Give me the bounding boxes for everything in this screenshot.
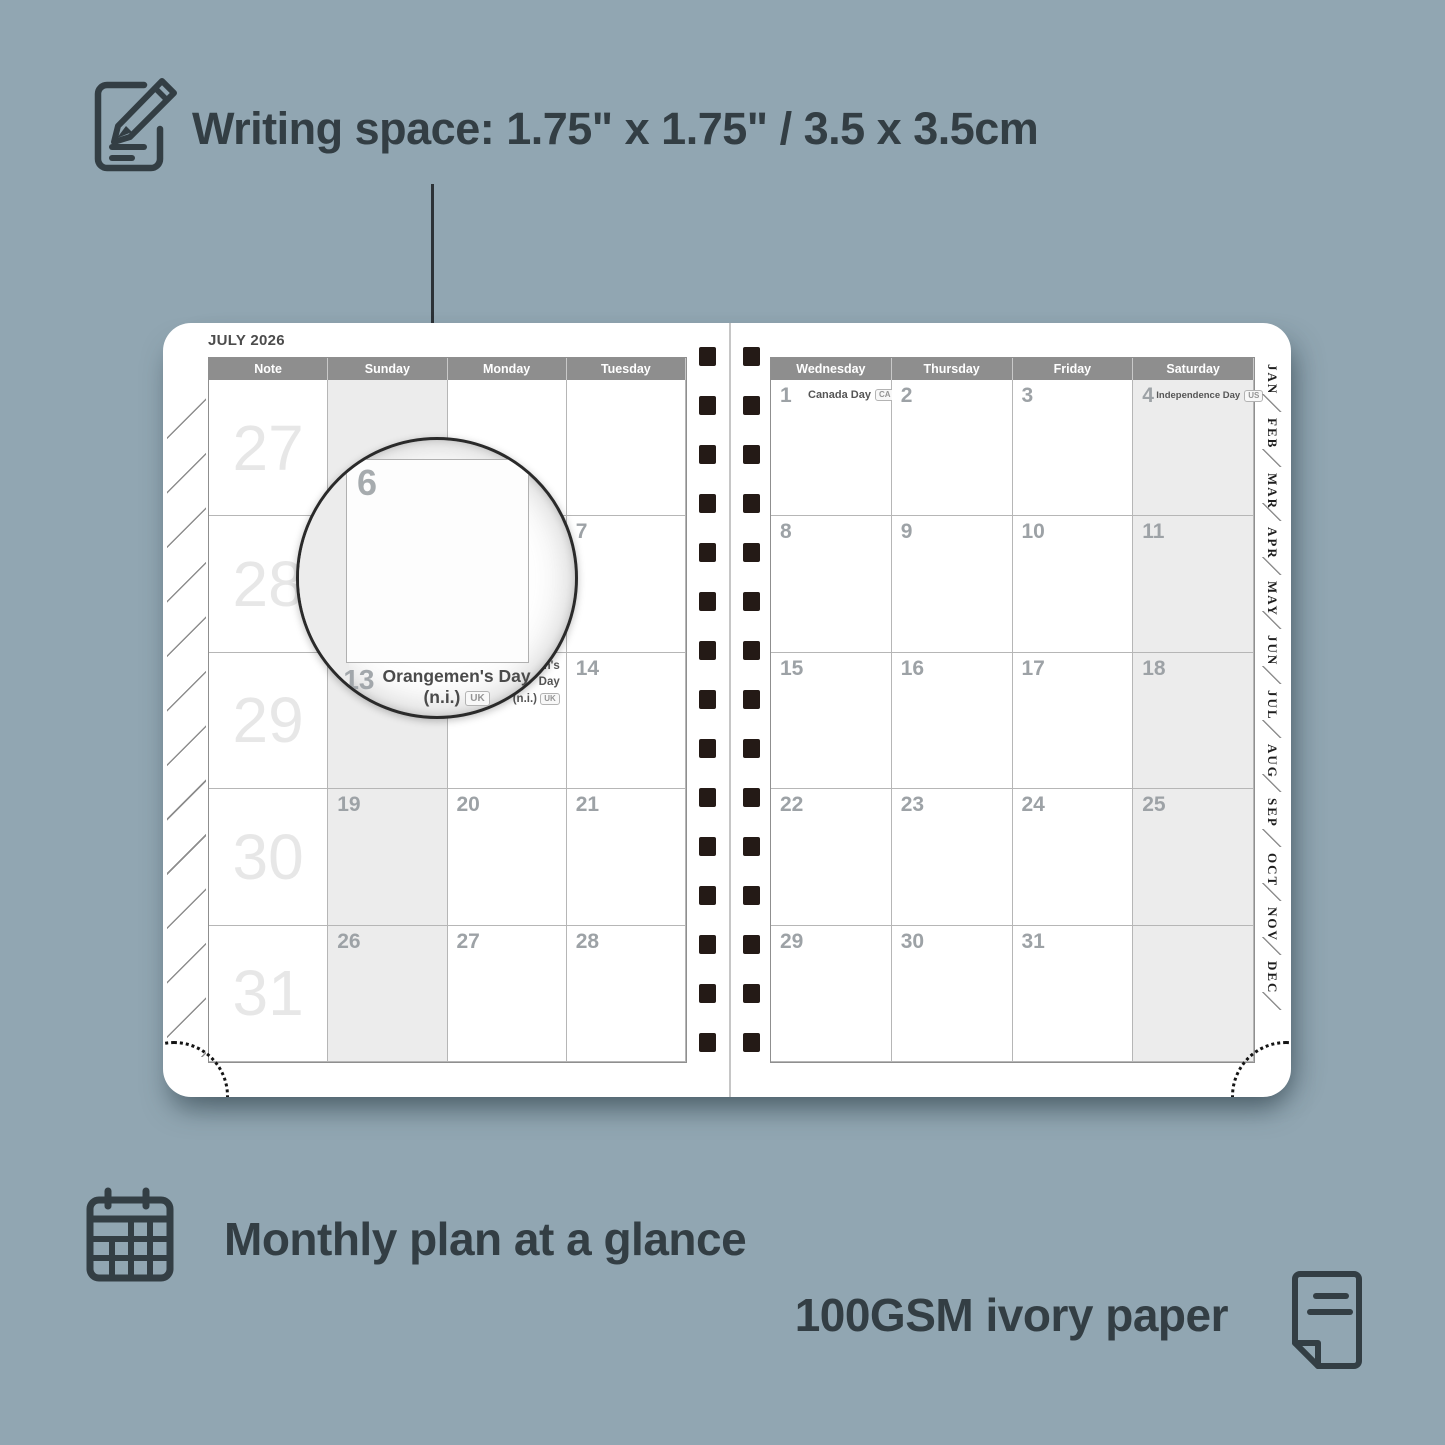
binding-hole bbox=[699, 1033, 716, 1052]
left-page-edge-hatch bbox=[167, 385, 206, 1057]
day-number: 28 bbox=[576, 930, 599, 954]
day-number: 8 bbox=[780, 520, 792, 544]
day-number: 21 bbox=[576, 793, 599, 817]
month-tab-label: JAN bbox=[1264, 364, 1280, 395]
calendar-cell: 21 bbox=[567, 789, 686, 925]
binding-hole bbox=[699, 494, 716, 513]
binding-hole bbox=[743, 935, 760, 954]
binding-hole bbox=[743, 788, 760, 807]
day-number: 18 bbox=[1142, 657, 1165, 681]
month-tab-dec: DEC bbox=[1253, 955, 1291, 1009]
right-page-calendar-grid: WednesdayThursdayFridaySaturday1Canada D… bbox=[770, 357, 1255, 1063]
binding-hole bbox=[743, 347, 760, 366]
calendar-cell: 2 bbox=[892, 380, 1013, 516]
binding-hole bbox=[743, 690, 760, 709]
binding-hole bbox=[699, 592, 716, 611]
magnified-caption-day: 13 bbox=[343, 666, 374, 694]
month-tab-mar: MAR bbox=[1253, 467, 1291, 521]
holiday-subtitle: (n.i.) bbox=[423, 687, 460, 707]
holiday-label: Independence DayUS bbox=[1156, 390, 1250, 402]
month-tab-label: MAY bbox=[1264, 581, 1280, 617]
day-header: Thursday bbox=[892, 358, 1013, 380]
calendar-cell: 15 bbox=[771, 653, 892, 789]
calendar-cell: 8 bbox=[771, 516, 892, 652]
binding-hole bbox=[743, 641, 760, 660]
day-number: 31 bbox=[1022, 930, 1045, 954]
month-tab-strip: JANFEBMARAPRMAYJUNJULAUGSEPOCTNOVDEC bbox=[1253, 358, 1291, 1010]
week-number-cell: 30 bbox=[209, 789, 328, 925]
day-number: 27 bbox=[457, 930, 480, 954]
page-seam bbox=[729, 323, 731, 1097]
magnifier-circle: 6 13 Orangemen's Day (n.i.) UK bbox=[296, 437, 578, 719]
month-tab-label: AUG bbox=[1264, 744, 1280, 779]
calendar-cell: 26 bbox=[328, 926, 447, 1062]
calendar-cell: 19 bbox=[328, 789, 447, 925]
month-tab-label: SEP bbox=[1264, 798, 1280, 828]
binding-hole bbox=[699, 347, 716, 366]
calendar-cell: 7 bbox=[567, 516, 686, 652]
day-number: 17 bbox=[1022, 657, 1045, 681]
calendar-cell: 20 bbox=[448, 789, 567, 925]
calendar-cell: 22 bbox=[771, 789, 892, 925]
day-number: 23 bbox=[901, 793, 924, 817]
calendar-cell: 24 bbox=[1013, 789, 1134, 925]
month-tab-label: MAR bbox=[1264, 473, 1280, 510]
binding-hole bbox=[743, 984, 760, 1003]
day-number: 7 bbox=[576, 520, 588, 544]
calendar-cell: 10 bbox=[1013, 516, 1134, 652]
month-tab-sep: SEP bbox=[1253, 792, 1291, 846]
day-number: 3 bbox=[1022, 384, 1034, 408]
month-title: JULY 2026 bbox=[208, 332, 285, 349]
month-tab-oct: OCT bbox=[1253, 847, 1291, 901]
week-number: 31 bbox=[209, 926, 327, 1061]
binding-hole bbox=[743, 837, 760, 856]
calendar-cell: 25 bbox=[1133, 789, 1254, 925]
binding-hole bbox=[699, 935, 716, 954]
writing-space-caption: Writing space: 1.75" x 1.75" / 3.5 x 3.5… bbox=[192, 103, 1038, 155]
day-number: 1 bbox=[780, 384, 792, 408]
binding-hole bbox=[743, 1033, 760, 1052]
binding-hole bbox=[699, 984, 716, 1003]
day-number: 15 bbox=[780, 657, 803, 681]
country-badge: UK bbox=[465, 691, 489, 706]
holiday-label: Canada DayCA bbox=[808, 389, 888, 401]
binding-hole bbox=[699, 886, 716, 905]
holiday-name: Independence Day bbox=[1156, 390, 1240, 401]
day-header: Wednesday bbox=[771, 358, 892, 380]
day-number: 4 bbox=[1142, 384, 1154, 408]
calendar-cell: 9 bbox=[892, 516, 1013, 652]
calendar-cell: 18 bbox=[1133, 653, 1254, 789]
calendar-cell: 11 bbox=[1133, 516, 1254, 652]
day-header: Tuesday bbox=[567, 358, 686, 380]
binding-hole bbox=[743, 592, 760, 611]
binding-hole bbox=[699, 837, 716, 856]
magnified-holiday-caption: 13 Orangemen's Day (n.i.) UK bbox=[329, 666, 545, 708]
magnified-day-number: 6 bbox=[357, 462, 377, 504]
pencil-note-icon bbox=[84, 74, 184, 176]
binding-hole bbox=[699, 543, 716, 562]
calendar-cell: 31 bbox=[1013, 926, 1134, 1062]
binding-hole bbox=[743, 543, 760, 562]
day-number: 19 bbox=[337, 793, 360, 817]
week-number-cell: 31 bbox=[209, 926, 328, 1062]
feature-monthly-plan: Monthly plan at a glance bbox=[224, 1212, 746, 1266]
week-number: 30 bbox=[209, 789, 327, 924]
month-tab-label: DEC bbox=[1264, 961, 1280, 994]
binding-hole bbox=[699, 445, 716, 464]
calendar-cell: 28 bbox=[567, 926, 686, 1062]
month-tab-jul: JUL bbox=[1253, 684, 1291, 738]
binding-hole bbox=[743, 886, 760, 905]
calendar-cell: 4Independence DayUS bbox=[1133, 380, 1254, 516]
calendar-cell: 17 bbox=[1013, 653, 1134, 789]
day-header: Note bbox=[209, 358, 328, 380]
day-number: 25 bbox=[1142, 793, 1165, 817]
binding-hole bbox=[699, 739, 716, 758]
calendar-cell: 23 bbox=[892, 789, 1013, 925]
month-tab-may: MAY bbox=[1253, 575, 1291, 629]
month-tab-feb: FEB bbox=[1253, 412, 1291, 466]
day-header: Friday bbox=[1013, 358, 1134, 380]
day-number: 2 bbox=[901, 384, 913, 408]
day-header: Saturday bbox=[1133, 358, 1254, 380]
magnified-writing-cell: 6 bbox=[346, 459, 529, 663]
calendar-cell bbox=[567, 380, 686, 516]
month-tab-label: NOV bbox=[1264, 907, 1280, 942]
day-number: 22 bbox=[780, 793, 803, 817]
day-header: Sunday bbox=[328, 358, 447, 380]
month-tab-apr: APR bbox=[1253, 521, 1291, 575]
binding-hole bbox=[699, 690, 716, 709]
calendar-grid-icon bbox=[82, 1186, 178, 1286]
magnified-caption-text: Orangemen's Day (n.i.) UK bbox=[383, 666, 531, 708]
month-tab-aug: AUG bbox=[1253, 738, 1291, 792]
paper-sheet-icon bbox=[1286, 1268, 1364, 1372]
month-tab-label: APR bbox=[1264, 527, 1280, 560]
product-image: Writing space: 1.75" x 1.75" / 3.5 x 3.5… bbox=[0, 0, 1445, 1445]
day-number: 14 bbox=[576, 657, 599, 681]
binding-hole bbox=[743, 396, 760, 415]
calendar-cell: 3 bbox=[1013, 380, 1134, 516]
day-number: 20 bbox=[457, 793, 480, 817]
month-tab-label: FEB bbox=[1264, 418, 1280, 449]
day-header: Monday bbox=[448, 358, 567, 380]
calendar-cell: 30 bbox=[892, 926, 1013, 1062]
binding-hole bbox=[699, 641, 716, 660]
month-tab-nov: NOV bbox=[1253, 901, 1291, 955]
holiday-name: Canada Day bbox=[808, 389, 871, 401]
calendar-cell: 27 bbox=[448, 926, 567, 1062]
day-number: 16 bbox=[901, 657, 924, 681]
month-tab-jun: JUN bbox=[1253, 629, 1291, 683]
month-tab-label: JUL bbox=[1264, 690, 1280, 721]
feature-paper: 100GSM ivory paper bbox=[795, 1288, 1228, 1342]
binding-hole bbox=[743, 445, 760, 464]
day-number: 11 bbox=[1142, 520, 1164, 544]
calendar-cell bbox=[1133, 926, 1254, 1062]
calendar-cell: 29 bbox=[771, 926, 892, 1062]
binding-hole bbox=[699, 788, 716, 807]
calendar-cell: 1Canada DayCA bbox=[771, 380, 892, 516]
day-number: 10 bbox=[1022, 520, 1045, 544]
month-tab-label: OCT bbox=[1264, 853, 1280, 887]
holiday-name: Orangemen's Day bbox=[383, 666, 531, 686]
binding-hole bbox=[743, 739, 760, 758]
month-tab-label: JUN bbox=[1264, 635, 1280, 666]
day-number: 9 bbox=[901, 520, 913, 544]
month-tab-jan: JAN bbox=[1253, 358, 1291, 412]
binding-hole bbox=[699, 396, 716, 415]
day-number: 26 bbox=[337, 930, 360, 954]
binding-hole bbox=[743, 494, 760, 513]
day-number: 29 bbox=[780, 930, 803, 954]
calendar-cell: 16 bbox=[892, 653, 1013, 789]
day-number: 24 bbox=[1022, 793, 1045, 817]
calendar-cell: 14 bbox=[567, 653, 686, 789]
day-number: 30 bbox=[901, 930, 924, 954]
